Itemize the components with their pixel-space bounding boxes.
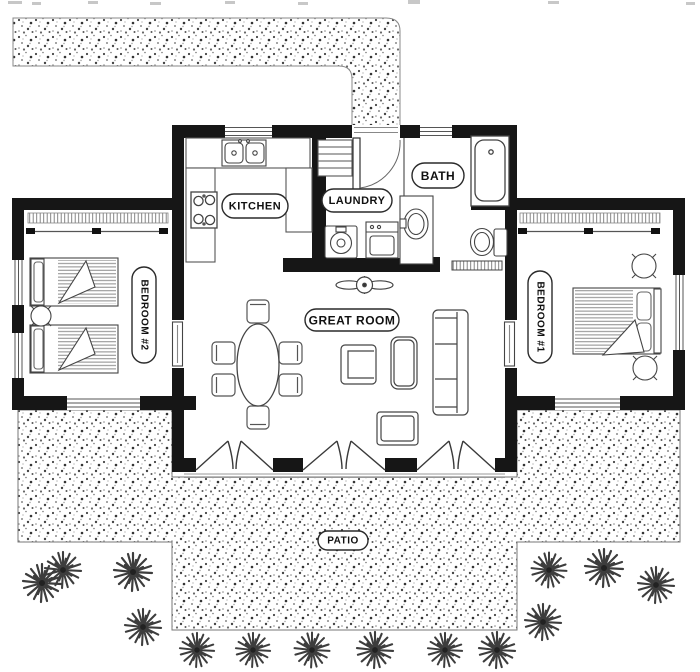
shrub-icon bbox=[295, 633, 330, 668]
shrub-icon bbox=[236, 633, 270, 667]
floor-plan-canvas: KITCHEN LAUNDRY BATH GREAT ROOM BEDROOM … bbox=[0, 0, 700, 672]
top-edge-marks bbox=[8, 0, 695, 5]
bedside-table bbox=[31, 306, 51, 326]
front-door-leaf bbox=[353, 138, 360, 190]
shrub-icon bbox=[114, 553, 152, 591]
twin-bed-2 bbox=[30, 325, 118, 373]
bath-door bbox=[452, 261, 502, 270]
stove bbox=[191, 192, 217, 228]
room-label-kitchen: KITCHEN bbox=[222, 194, 288, 218]
dining-chair bbox=[212, 342, 235, 364]
shrub-icon bbox=[428, 633, 462, 667]
room-label-bedroom-2-text: BEDROOM #2 bbox=[139, 279, 150, 350]
bathtub bbox=[471, 136, 509, 206]
dryer bbox=[366, 222, 398, 258]
room-label-bedroom-2: BEDROOM #2 bbox=[132, 267, 156, 363]
room-label-bedroom-1-text: BEDROOM #1 bbox=[535, 281, 546, 352]
room-label-bath: BATH bbox=[412, 163, 464, 188]
shrub-icon bbox=[180, 633, 214, 667]
dining-table bbox=[237, 324, 279, 406]
room-label-kitchen-text: KITCHEN bbox=[229, 201, 281, 213]
shrub-icon bbox=[479, 632, 515, 668]
dining-chair bbox=[279, 342, 302, 364]
room-label-patio-text: PATIO bbox=[327, 536, 359, 547]
nightstand-1 bbox=[632, 254, 656, 278]
dining-chair bbox=[247, 300, 269, 323]
bedroom2-door bbox=[173, 322, 183, 366]
dining-chair bbox=[212, 374, 235, 396]
shrub-icon bbox=[638, 567, 674, 603]
bedroom1-door bbox=[505, 322, 515, 366]
washer bbox=[325, 226, 357, 258]
room-label-laundry-text: LAUNDRY bbox=[329, 195, 386, 207]
kitchen-counter-right bbox=[286, 168, 312, 232]
room-label-laundry: LAUNDRY bbox=[322, 189, 392, 212]
sofa bbox=[433, 310, 468, 415]
dining-chair bbox=[247, 406, 269, 429]
room-label-great-room-text: GREAT ROOM bbox=[309, 314, 396, 328]
room-label-great-room: GREAT ROOM bbox=[305, 309, 399, 331]
shrub-icon bbox=[125, 609, 161, 645]
kitchen-sink bbox=[222, 140, 266, 166]
laundry-shelf bbox=[318, 140, 352, 176]
coffee-table bbox=[391, 337, 417, 389]
floor-plan-drawing: KITCHEN LAUNDRY BATH GREAT ROOM BEDROOM … bbox=[0, 0, 700, 672]
room-label-bedroom-1: BEDROOM #1 bbox=[528, 271, 552, 363]
ottoman bbox=[377, 412, 418, 445]
double-bed bbox=[573, 288, 661, 355]
shrub-icon bbox=[525, 604, 561, 640]
toilet bbox=[471, 229, 508, 257]
room-label-bath-text: BATH bbox=[421, 169, 455, 183]
shrub-icon bbox=[532, 553, 567, 588]
twin-bed-1 bbox=[30, 258, 118, 306]
shrub-icon bbox=[357, 632, 393, 668]
vanity-sink bbox=[400, 196, 433, 264]
dining-chair bbox=[279, 374, 302, 396]
driveway-walkway bbox=[13, 18, 400, 128]
armchair bbox=[341, 345, 376, 384]
nightstand-2 bbox=[633, 356, 657, 380]
shrub-icon bbox=[585, 549, 623, 587]
room-label-patio: PATIO bbox=[318, 531, 368, 550]
